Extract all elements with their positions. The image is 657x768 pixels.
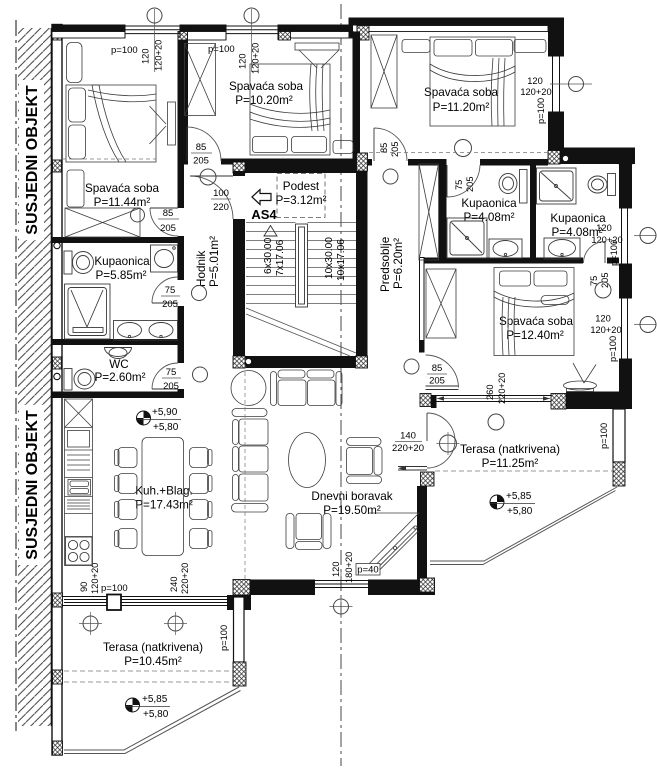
svg-text:120+20: 120+20: [520, 87, 551, 97]
svg-text:Podest: Podest: [283, 180, 320, 193]
svg-text:220+20: 220+20: [392, 443, 424, 454]
svg-text:Spavaća soba: Spavaća soba: [499, 315, 574, 328]
svg-text:Kuh.+Blag.: Kuh.+Blag.: [135, 485, 193, 498]
svg-text:205: 205: [600, 272, 610, 288]
svg-text:+5,90: +5,90: [152, 407, 178, 418]
svg-text:260: 260: [485, 384, 495, 400]
svg-text:P=5.01m²: P=5.01m²: [208, 236, 221, 287]
svg-text:p=100: p=100: [609, 240, 619, 266]
svg-text:p=100: p=100: [608, 336, 618, 362]
svg-text:+5,80: +5,80: [507, 506, 533, 517]
svg-text:205: 205: [429, 376, 445, 387]
svg-text:p=100: p=100: [101, 583, 128, 594]
svg-text:100: 100: [213, 188, 229, 199]
svg-text:P=11.25m²: P=11.25m²: [482, 457, 539, 470]
svg-text:WC: WC: [109, 358, 128, 371]
svg-text:+5,80: +5,80: [143, 709, 169, 720]
svg-text:P=11.44m²: P=11.44m²: [94, 196, 151, 209]
svg-text:220+20: 220+20: [497, 373, 507, 404]
svg-text:120: 120: [595, 314, 611, 324]
svg-text:p=100: p=100: [219, 625, 229, 651]
svg-text:120+20: 120+20: [590, 325, 621, 335]
svg-text:85: 85: [196, 142, 207, 153]
svg-text:75: 75: [165, 285, 176, 296]
svg-text:P=5.85m²: P=5.85m²: [96, 269, 147, 282]
svg-text:10x17.06: 10x17.06: [336, 239, 347, 281]
svg-text:85: 85: [163, 208, 174, 219]
svg-text:220: 220: [213, 202, 229, 213]
svg-text:140: 140: [400, 431, 416, 442]
svg-text:205: 205: [193, 156, 209, 167]
svg-text:90: 90: [79, 582, 89, 592]
svg-text:10x30.00: 10x30.00: [324, 237, 335, 279]
svg-text:p=100: p=100: [599, 423, 609, 449]
svg-text:SUSJEDNI OBJEKT: SUSJEDNI OBJEKT: [24, 85, 41, 235]
svg-text:P=10.45m²: P=10.45m²: [124, 655, 182, 668]
svg-text:205: 205: [163, 381, 179, 392]
svg-text:Predsoblje: Predsoblje: [379, 237, 392, 292]
svg-text:85: 85: [432, 363, 443, 374]
svg-text:120+20: 120+20: [90, 563, 100, 594]
svg-text:p=40: p=40: [357, 565, 378, 576]
svg-text:75: 75: [454, 180, 464, 190]
svg-text:P=4.08m²: P=4.08m²: [464, 211, 515, 224]
svg-text:P=6.20m²: P=6.20m²: [392, 238, 405, 289]
svg-text:P=10.20m²: P=10.20m²: [235, 94, 293, 107]
svg-text:Spavaća soba: Spavaća soba: [85, 182, 160, 195]
svg-text:Kupaonica: Kupaonica: [461, 197, 517, 210]
svg-text:P=3.12m²: P=3.12m²: [276, 194, 327, 207]
svg-text:p=100: p=100: [111, 45, 138, 56]
svg-text:120: 120: [527, 76, 543, 86]
svg-text:p=100: p=100: [208, 44, 235, 55]
svg-text:P=19.50m²: P=19.50m²: [323, 504, 381, 517]
svg-text:205: 205: [390, 141, 400, 157]
svg-text:205: 205: [160, 223, 176, 234]
svg-text:75: 75: [166, 367, 177, 378]
svg-text:P=17.43m²: P=17.43m²: [135, 499, 193, 512]
svg-text:120: 120: [331, 561, 341, 577]
svg-text:205: 205: [465, 176, 475, 192]
svg-text:p=100: p=100: [536, 98, 546, 124]
svg-text:Hodnik: Hodnik: [195, 250, 208, 287]
svg-text:Kupaonica: Kupaonica: [550, 212, 606, 225]
svg-text:P=11.20m²: P=11.20m²: [433, 101, 490, 114]
svg-text:Spavaća soba: Spavaća soba: [229, 80, 304, 93]
svg-text:+5,85: +5,85: [142, 694, 168, 705]
svg-text:180+20: 180+20: [344, 552, 354, 583]
svg-text:240: 240: [169, 576, 179, 592]
svg-text:Terasa (natkrivena): Terasa (natkrivena): [460, 443, 560, 456]
svg-text:SUSJEDNI OBJEKT: SUSJEDNI OBJEKT: [24, 410, 41, 560]
svg-text:120: 120: [238, 53, 248, 69]
svg-text:Spavaća soba: Spavaća soba: [424, 86, 499, 99]
svg-text:Kupaonica: Kupaonica: [94, 255, 150, 268]
svg-text:205: 205: [162, 299, 178, 310]
svg-text:P=4.08m²: P=4.08m²: [552, 226, 603, 239]
svg-text:120: 120: [141, 48, 151, 64]
svg-text:+5,85: +5,85: [506, 491, 532, 502]
svg-text:Dnevni boravak: Dnevni boravak: [311, 490, 392, 503]
svg-text:85: 85: [379, 143, 389, 153]
svg-text:120+20: 120+20: [251, 43, 261, 74]
svg-text:P=12.40m²: P=12.40m²: [506, 329, 564, 342]
svg-text:6x30.00: 6x30.00: [263, 237, 274, 274]
svg-text:+5,80: +5,80: [153, 422, 179, 433]
svg-text:7x17.06: 7x17.06: [275, 239, 286, 276]
svg-text:220+20: 220+20: [180, 563, 190, 594]
svg-text:120+20: 120+20: [154, 40, 164, 71]
svg-text:AS4: AS4: [251, 207, 277, 222]
svg-text:Terasa (natkrivena): Terasa (natkrivena): [103, 641, 203, 654]
svg-text:P=2.60m²: P=2.60m²: [95, 371, 146, 384]
